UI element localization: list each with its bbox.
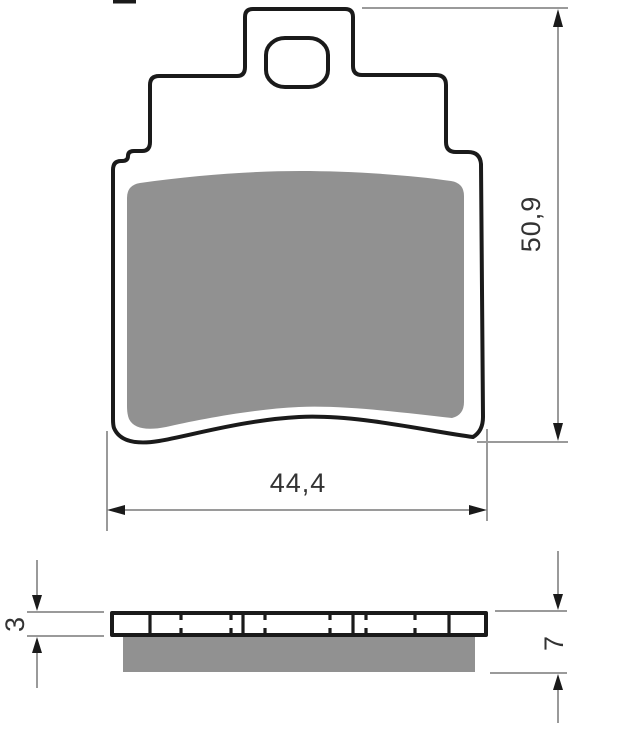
arrowhead-down xyxy=(32,595,42,611)
drawing-canvas: 50,9 44,4 xyxy=(0,0,640,755)
friction-material-front xyxy=(127,171,464,429)
dimension-plate-thickness: 3 xyxy=(0,560,104,688)
brake-pad-technical-drawing: 50,9 44,4 xyxy=(0,0,640,755)
dimension-total-thickness: 7 xyxy=(490,551,569,723)
arrowhead-down xyxy=(553,423,563,441)
arrowhead-left xyxy=(107,505,125,515)
friction-material-side xyxy=(123,636,475,672)
total-thickness-label: 7 xyxy=(539,635,569,651)
arrowhead-up xyxy=(553,674,563,690)
arrowhead-right xyxy=(469,505,487,515)
front-view xyxy=(113,9,483,442)
arrowhead-down xyxy=(553,594,563,610)
plate-thickness-label: 3 xyxy=(0,616,30,632)
backing-plate-side xyxy=(112,613,486,635)
width-dimension-label: 44,4 xyxy=(270,468,327,498)
cropped-top-artifact xyxy=(113,0,136,4)
height-dimension-label: 50,9 xyxy=(516,196,546,253)
side-view xyxy=(112,613,486,672)
arrowhead-up xyxy=(553,9,563,27)
arrowhead-up xyxy=(32,637,42,653)
dimension-width: 44,4 xyxy=(107,429,487,531)
mounting-hole xyxy=(266,38,328,87)
